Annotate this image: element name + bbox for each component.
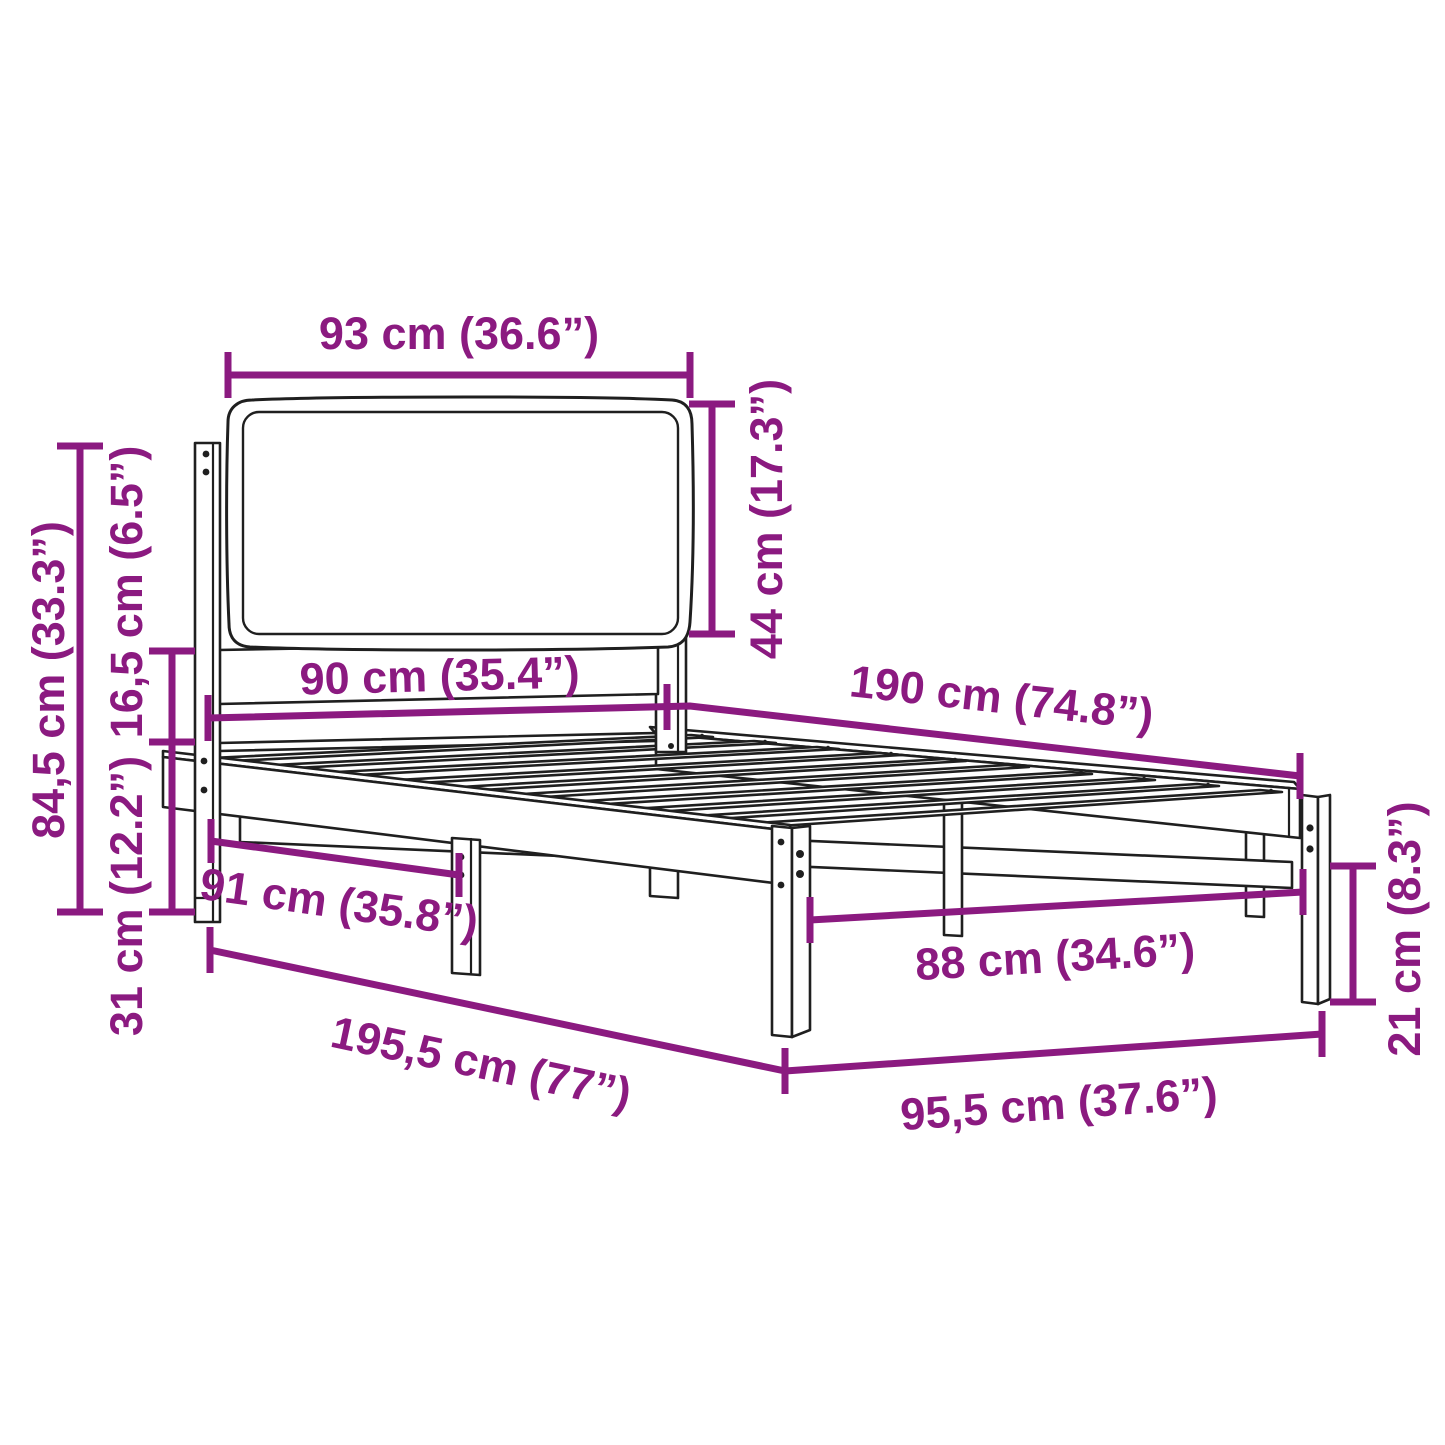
dimension-total-width: 95,5 cm (37.6”) <box>785 1011 1322 1140</box>
dimension-leg-height-label: 21 cm (8.3”) <box>1379 801 1430 1056</box>
dimension-total-height-label: 84,5 cm (33.3”) <box>23 521 74 839</box>
dimension-total-length: 195,5 cm (77”) <box>210 927 785 1120</box>
dimension-frame-top-height-label: 31 cm (12.2”) <box>101 756 152 1036</box>
bed-frame-dimension-diagram: 93 cm (36.6”) 44 cm (17.3”) 84,5 cm (33.… <box>0 0 1445 1445</box>
dimension-headboard-panel-height-label: 44 cm (17.3”) <box>741 379 792 659</box>
dimension-headboard-lower-gap-label: 16,5 cm (6.5”) <box>101 446 152 739</box>
dimension-headboard-width: 93 cm (36.6”) <box>228 308 690 398</box>
dimension-leg-height: 21 cm (8.3”) <box>1330 801 1430 1056</box>
dimension-inner-width: 88 cm (34.6”) <box>810 869 1303 990</box>
headboard-cushion <box>227 397 694 650</box>
dimension-total-height: 84,5 cm (33.3”) <box>23 446 103 912</box>
diagram-canvas: 93 cm (36.6”) 44 cm (17.3”) 84,5 cm (33.… <box>0 0 1445 1445</box>
dimension-total-length-label: 195,5 cm (77”) <box>327 1006 636 1119</box>
dimension-mattress-width-label: 90 cm (35.4”) <box>299 646 580 704</box>
dimension-total-width-label: 95,5 cm (37.6”) <box>899 1067 1219 1140</box>
dimension-headboard-width-label: 93 cm (36.6”) <box>319 308 599 359</box>
dimension-headboard-panel-height: 44 cm (17.3”) <box>689 379 792 659</box>
dimension-headboard-lower-gap: 16,5 cm (6.5”) 31 cm (12.2”) <box>101 446 195 1036</box>
front-right-leg <box>772 826 810 1037</box>
